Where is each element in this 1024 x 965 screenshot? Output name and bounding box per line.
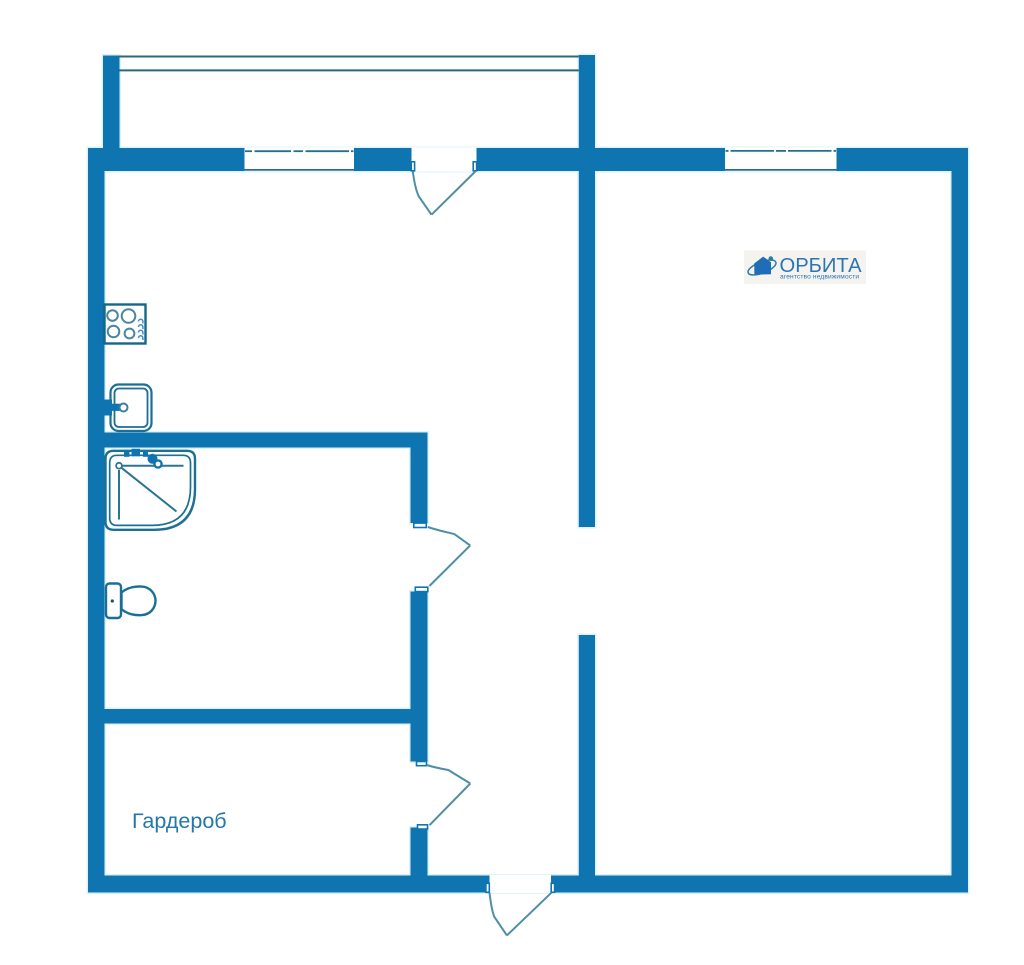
- svg-text:агентство недвижимости: агентство недвижимости: [780, 274, 859, 281]
- svg-text:Гардероб: Гардероб: [132, 809, 227, 833]
